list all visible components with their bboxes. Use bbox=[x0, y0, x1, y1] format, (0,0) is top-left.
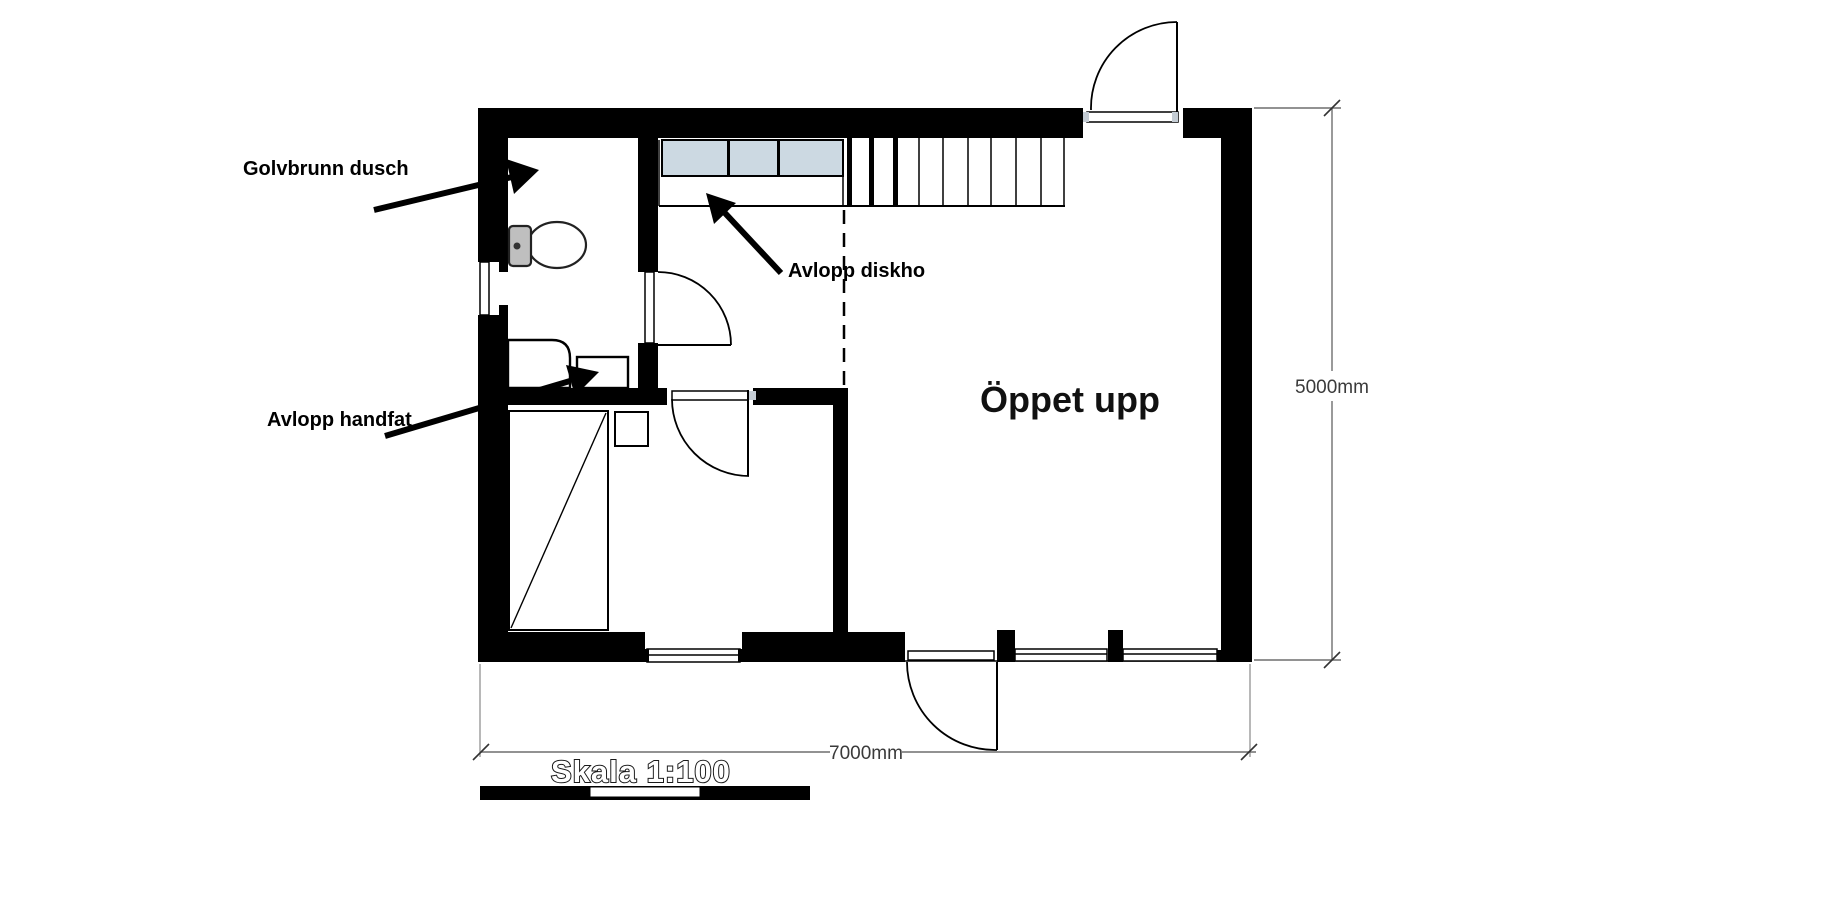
window-stub-right bbox=[738, 649, 742, 662]
arrow-shaft bbox=[724, 212, 781, 273]
wall-top-right-segment bbox=[1183, 108, 1252, 138]
livingroom-door-bottom bbox=[907, 651, 997, 750]
label-avlopp-diskho: Avlopp diskho bbox=[788, 260, 925, 282]
cabinet-cell bbox=[662, 140, 728, 176]
cabinet-cell bbox=[729, 140, 778, 176]
window-stub-bottom bbox=[499, 305, 508, 315]
wall-right bbox=[1221, 138, 1252, 662]
wall-left-lower bbox=[478, 315, 508, 662]
hall-wall-right-segment bbox=[753, 388, 848, 405]
door-hinge-cap bbox=[748, 391, 756, 400]
scale-bar-middle-segment bbox=[590, 787, 700, 797]
wall-pillar-left bbox=[997, 630, 1015, 662]
floor-plan-canvas: 5000mm 7000mm Golvbrunn dusch Avlopp han… bbox=[0, 0, 1844, 904]
nightstand bbox=[615, 412, 648, 446]
door-swing-arc bbox=[672, 399, 749, 476]
label-avlopp-handfat: Avlopp handfat bbox=[267, 409, 412, 431]
bed bbox=[509, 411, 608, 630]
window-livingroom-a bbox=[1015, 649, 1107, 661]
bathroom-wall-upper bbox=[638, 138, 658, 272]
entry-door-top bbox=[1083, 22, 1178, 122]
dimension-7000: 7000mm bbox=[473, 664, 1257, 764]
wall-bottom-left-a bbox=[508, 632, 645, 662]
scale-indicator: Skala 1:100 bbox=[480, 754, 810, 800]
stair-riser-thick bbox=[893, 138, 898, 206]
bathroom-wall-lower bbox=[638, 343, 658, 388]
wall-pillar-right bbox=[1108, 630, 1123, 662]
door-threshold bbox=[1087, 112, 1178, 122]
door-hinge-cap bbox=[1172, 112, 1178, 122]
toilet-bowl bbox=[528, 222, 586, 268]
window-glass bbox=[480, 262, 489, 315]
kitchen-counter bbox=[659, 140, 843, 206]
window-livingroom-b bbox=[1123, 649, 1217, 661]
door-swing-arc bbox=[1091, 22, 1177, 110]
bedroom-door bbox=[672, 390, 756, 476]
toilet-flush-button bbox=[514, 243, 521, 250]
stair-riser-thick bbox=[847, 138, 852, 206]
label-golvbrunn-dusch: Golvbrunn dusch bbox=[243, 158, 409, 180]
arrow-head bbox=[506, 159, 539, 194]
scale-label: Skala 1:100 bbox=[551, 754, 731, 789]
window-stub-top bbox=[499, 262, 508, 272]
floor-plan-drawing: 5000mm 7000mm Golvbrunn dusch Avlopp han… bbox=[0, 0, 1844, 904]
wall-left-upper bbox=[478, 138, 508, 262]
wall-bottom-left-b bbox=[742, 632, 905, 662]
wall-top-left-segment bbox=[478, 108, 1083, 138]
door-swing-arc bbox=[907, 662, 997, 750]
door-threshold bbox=[908, 651, 994, 660]
living-room-wall bbox=[833, 405, 848, 632]
door-swing-arc bbox=[658, 272, 731, 345]
window-bedroom-bottom bbox=[645, 649, 742, 662]
toilet-icon bbox=[509, 222, 586, 268]
door-hinge-cap bbox=[1083, 112, 1089, 122]
window-glass bbox=[1015, 649, 1107, 661]
window-bathroom-left bbox=[478, 262, 508, 315]
bathroom-door bbox=[645, 272, 731, 345]
label-oppet-upp: Öppet upp bbox=[980, 379, 1160, 420]
door-threshold bbox=[672, 391, 748, 400]
stair-riser-thick bbox=[869, 138, 874, 206]
dimension-label-bottom: 7000mm bbox=[829, 743, 903, 764]
window-glass bbox=[1123, 649, 1217, 661]
door-jamb bbox=[645, 272, 654, 343]
dimension-5000: 5000mm bbox=[1254, 100, 1369, 668]
window-stub-left bbox=[645, 649, 649, 662]
dimension-label-right: 5000mm bbox=[1295, 377, 1369, 398]
cabinet-cell bbox=[779, 140, 843, 176]
